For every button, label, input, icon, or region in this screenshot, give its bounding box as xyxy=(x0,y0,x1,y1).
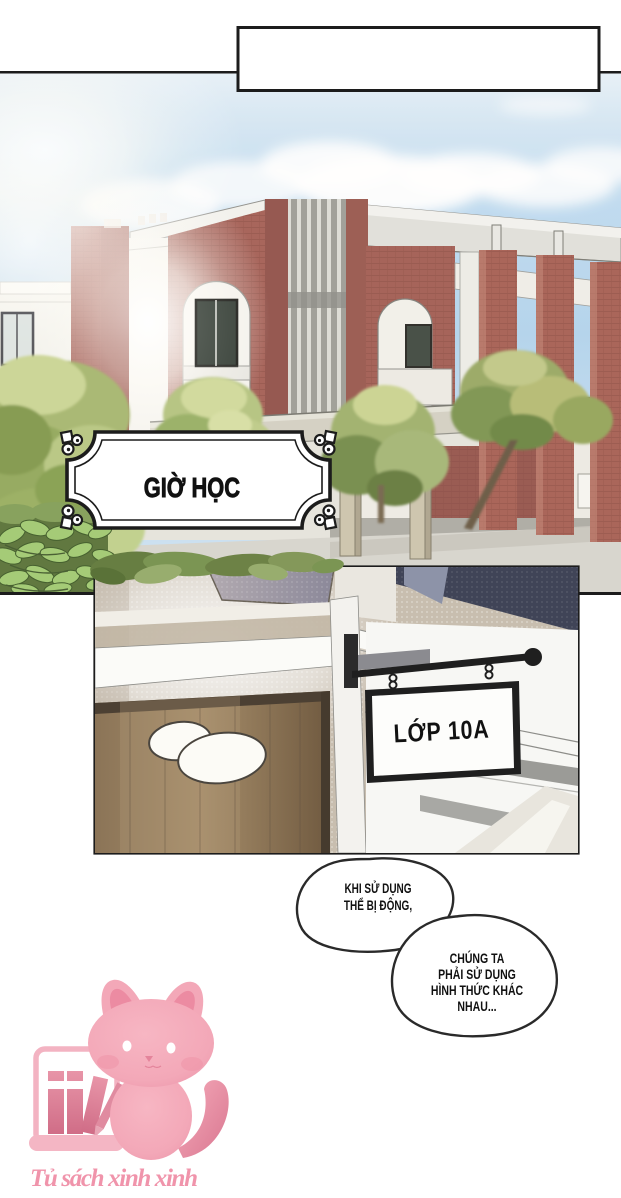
svg-text:GIỜ HỌC: GIỜ HỌC xyxy=(144,470,240,503)
svg-text:CHÚNG TA: CHÚNG TA xyxy=(450,950,505,967)
svg-text:Tủ sách xinh xinh: Tủ sách xinh xinh xyxy=(30,1165,198,1192)
svg-text:LỚP 10A: LỚP 10A xyxy=(393,713,490,749)
svg-text:HÌNH THỨC KHÁC: HÌNH THỨC KHÁC xyxy=(431,982,524,999)
svg-text:KHI SỬ DỤNG: KHI SỬ DỤNG xyxy=(344,879,411,896)
svg-text:PHẢI SỬ DỤNG: PHẢI SỬ DỤNG xyxy=(438,966,516,983)
svg-text:THỂ BỊ ĐỘNG,: THỂ BỊ ĐỘNG, xyxy=(344,896,412,913)
svg-text:NHAU...: NHAU... xyxy=(457,999,496,1015)
